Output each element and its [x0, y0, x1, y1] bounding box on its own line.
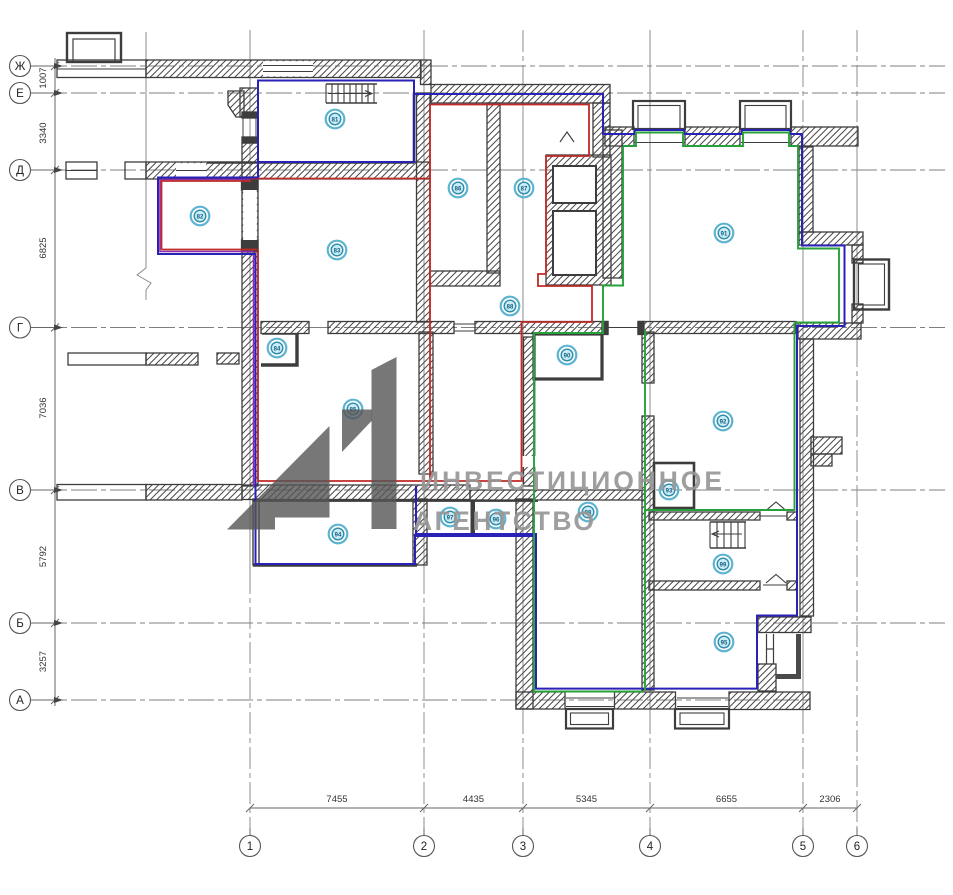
svg-text:2306: 2306 — [819, 794, 840, 805]
svg-text:Г: Г — [17, 323, 24, 335]
svg-text:5792: 5792 — [38, 546, 49, 567]
svg-text:1007: 1007 — [38, 67, 49, 88]
svg-text:7036: 7036 — [38, 397, 49, 418]
svg-text:5345: 5345 — [576, 794, 597, 805]
svg-text:Е: Е — [16, 88, 24, 100]
svg-text:84: 84 — [274, 347, 281, 353]
svg-text:ИНВЕСТИЦИОННОЕ: ИНВЕСТИЦИОННОЕ — [420, 466, 722, 496]
svg-text:2: 2 — [421, 841, 427, 853]
svg-text:99: 99 — [720, 563, 727, 569]
svg-text:Ж: Ж — [15, 61, 26, 73]
svg-text:А: А — [16, 695, 24, 707]
svg-text:81: 81 — [332, 118, 339, 124]
svg-text:5: 5 — [800, 841, 806, 853]
svg-text:АГЕНТСТВО: АГЕНТСТВО — [413, 506, 594, 536]
svg-text:82: 82 — [197, 215, 204, 221]
svg-text:1: 1 — [247, 841, 253, 853]
svg-text:83: 83 — [334, 249, 341, 255]
svg-text:6: 6 — [854, 841, 860, 853]
svg-text:3257: 3257 — [38, 651, 49, 672]
svg-text:7455: 7455 — [326, 794, 347, 805]
svg-text:94: 94 — [335, 533, 342, 539]
svg-text:4: 4 — [647, 841, 654, 853]
svg-text:6655: 6655 — [716, 794, 737, 805]
svg-text:В: В — [16, 485, 24, 497]
svg-text:3: 3 — [520, 841, 526, 853]
svg-text:88: 88 — [507, 305, 514, 311]
svg-text:3340: 3340 — [38, 122, 49, 143]
svg-text:Д: Д — [16, 165, 24, 177]
svg-text:95: 95 — [721, 641, 728, 647]
svg-text:87: 87 — [521, 187, 528, 193]
svg-text:Б: Б — [16, 618, 24, 630]
svg-text:4435: 4435 — [463, 794, 484, 805]
svg-text:90: 90 — [564, 354, 571, 360]
svg-text:91: 91 — [721, 232, 728, 238]
svg-text:92: 92 — [720, 420, 727, 426]
svg-text:86: 86 — [455, 187, 462, 193]
svg-text:6825: 6825 — [38, 237, 49, 258]
